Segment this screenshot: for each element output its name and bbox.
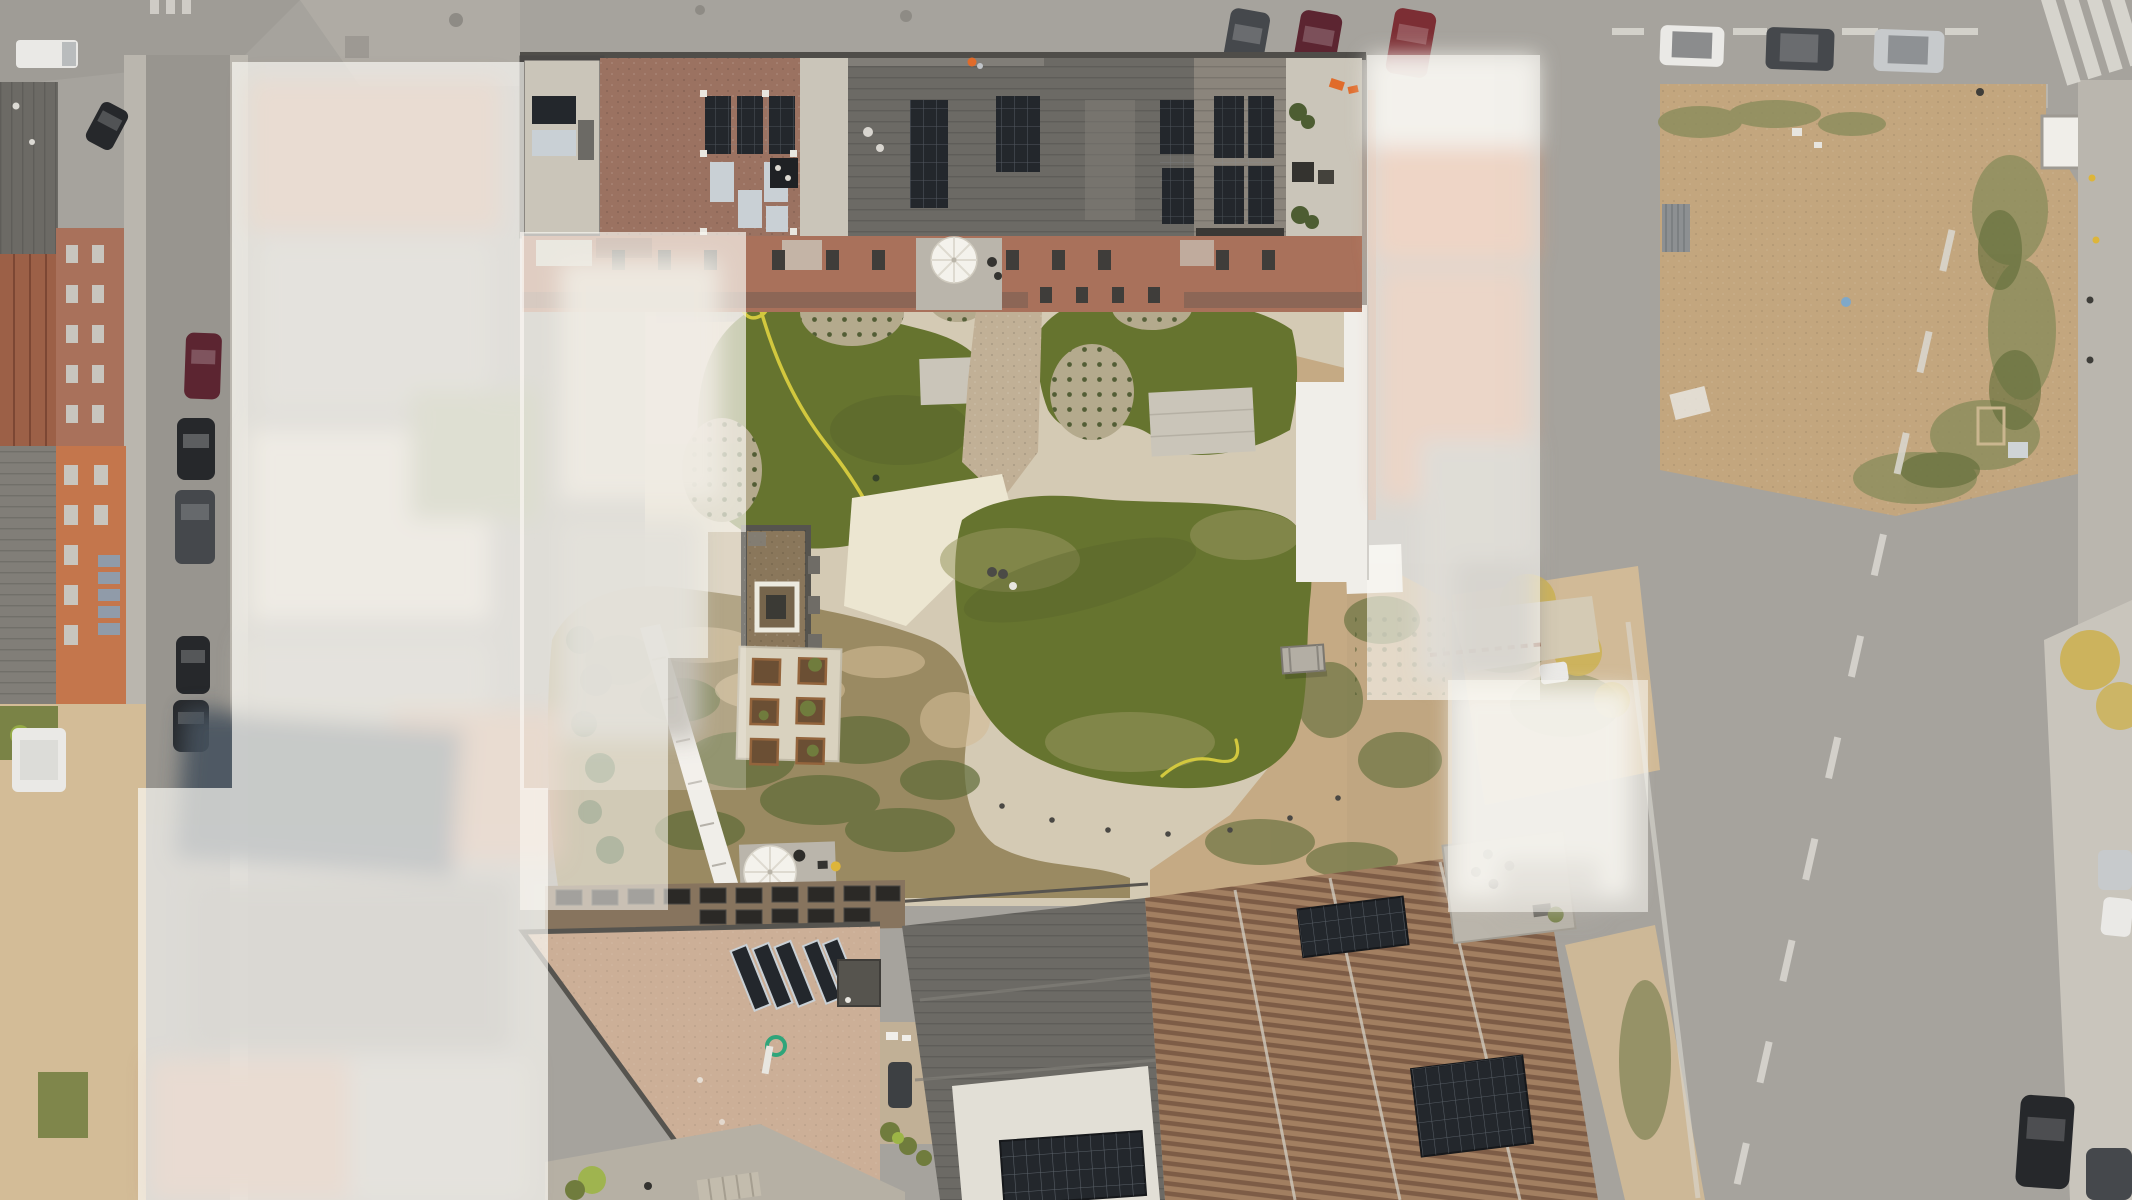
picnic-table [1281, 644, 1327, 679]
solar-array [1411, 1056, 1533, 1157]
roof-seams [0, 82, 58, 254]
roof-worker [968, 58, 977, 67]
sprinkler [873, 475, 880, 482]
roof-dark-a [848, 58, 1044, 236]
lawn-shade [830, 395, 970, 465]
roof-dark-b [1044, 58, 1196, 254]
car-on-road [2015, 1094, 2075, 1190]
terrace-furniture [987, 257, 997, 267]
solar-array [705, 96, 795, 154]
penthouse-box [838, 960, 880, 1006]
parked-car [184, 332, 222, 399]
roof-vent [876, 144, 884, 152]
roof-tower [522, 58, 602, 236]
aerial-photo [0, 0, 2132, 1200]
camper-van [12, 728, 66, 792]
manhole [695, 5, 705, 15]
right-sidewalk [2078, 80, 2132, 640]
manhole [449, 13, 463, 27]
roof-dot [719, 1119, 725, 1125]
planter-grid [736, 647, 841, 767]
parked-car [176, 636, 210, 694]
roof-vent [13, 103, 20, 110]
roof-warm-c [1194, 58, 1286, 240]
roof-vent [845, 997, 851, 1003]
car-partial [2086, 1148, 2132, 1200]
roof-vent [863, 127, 873, 137]
white-wall-building [1296, 382, 1348, 582]
verge-weeds [1619, 980, 1671, 1140]
roof-red-gravel [600, 58, 800, 236]
yellow-tree [2060, 630, 2120, 690]
parked-car [1659, 25, 1724, 67]
solar-collector [532, 130, 576, 156]
terrace-furniture [994, 272, 1002, 280]
roof-concrete-strip [800, 58, 848, 236]
hedge [38, 1072, 88, 1138]
roof-worker [977, 63, 983, 69]
traffic-pole [1976, 88, 1984, 96]
island-shrubs [1050, 344, 1134, 440]
street-bollard [644, 1182, 652, 1190]
roof-terrace-d [1286, 58, 1362, 248]
roof-seams [0, 446, 56, 708]
parked-car [1765, 27, 1834, 71]
solar-collector [532, 96, 576, 124]
dark-object [888, 1062, 912, 1108]
roof-dot [697, 1077, 703, 1083]
garden-pavilion [744, 528, 822, 662]
solar-array [1160, 100, 1196, 224]
manhole [900, 10, 912, 22]
roof-equipment-box [770, 158, 798, 188]
crosswalk-marks [150, 0, 191, 14]
parked-car [177, 418, 215, 480]
terrace-furniture [1292, 162, 1314, 182]
solar-array [1214, 96, 1274, 224]
white-truck [16, 40, 78, 68]
parked-van [175, 490, 215, 564]
blue-tarp-strip [98, 555, 120, 635]
utility-patch [345, 36, 369, 58]
parked-car [1873, 29, 1944, 73]
terrace-furniture [1318, 170, 1334, 184]
bush [565, 1180, 585, 1200]
parasol [931, 237, 977, 283]
solar-array-grid [1000, 1131, 1146, 1200]
roof-vent [29, 139, 35, 145]
